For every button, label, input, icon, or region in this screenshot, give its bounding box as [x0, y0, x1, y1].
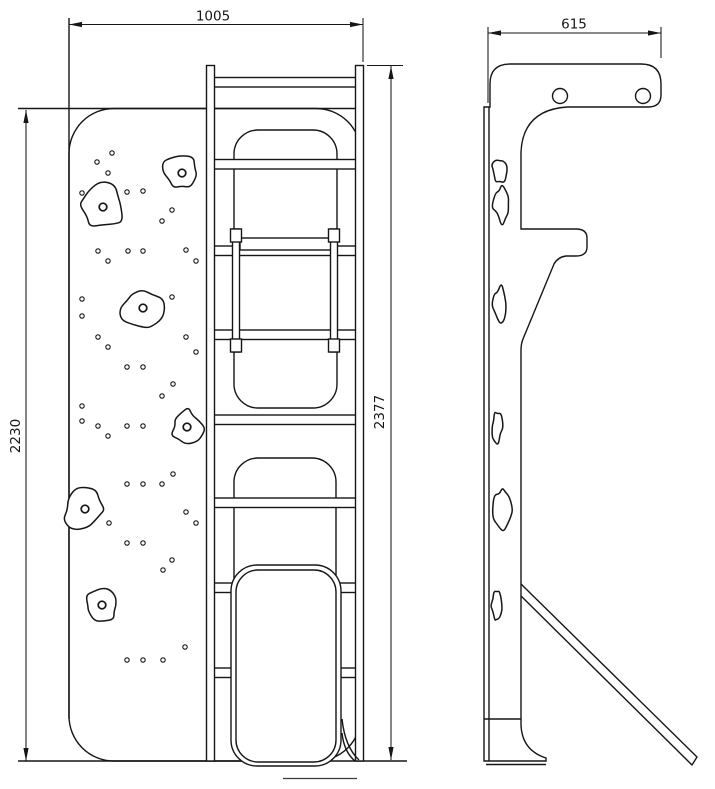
grab-post-cap-bottom	[329, 339, 340, 352]
panel-hole	[80, 191, 84, 195]
panel-hole	[184, 335, 188, 339]
panel-hole	[96, 249, 100, 253]
dimension-wall-height: 2230	[8, 110, 29, 761]
panel-hole	[106, 434, 110, 438]
panel-hole	[96, 335, 100, 339]
panel-hole	[125, 365, 129, 369]
ladder-rung	[214, 78, 356, 88]
panel-hole	[125, 482, 129, 486]
climb-hold-outline	[172, 409, 204, 444]
front-climb-holds	[64, 156, 204, 621]
panel-hole	[96, 424, 100, 428]
panel-hole	[170, 295, 174, 299]
dimension-label-depth: 615	[561, 17, 587, 33]
grab-post-cap-top	[231, 229, 242, 242]
grab-post-cap-bottom	[231, 339, 242, 352]
climb-hold	[64, 487, 103, 529]
climb-hold	[81, 182, 122, 226]
panel-hole	[141, 189, 145, 193]
panel-hole	[170, 558, 174, 562]
panel-hole	[171, 472, 175, 476]
panel-hole	[184, 510, 188, 514]
grab-post-cap-top	[329, 229, 340, 242]
panel-hole	[160, 394, 164, 398]
dimension-label-width: 1005	[196, 9, 230, 25]
slide-panel-outer	[231, 565, 341, 766]
dimension-overall-height: 2377	[367, 66, 403, 761]
ladder-rung	[214, 415, 356, 425]
dimension-label-overall-height: 2377	[372, 395, 388, 429]
grab-post-body	[233, 229, 240, 352]
climb-hold-outline	[87, 588, 116, 621]
side-view: 615	[484, 17, 697, 766]
dimension-label-wall-height: 2230	[8, 419, 24, 453]
panel-hole	[80, 314, 84, 318]
arrowhead-icon	[648, 30, 661, 35]
arrowhead-icon	[23, 748, 28, 761]
panel-hole	[107, 521, 111, 525]
grab-post-left	[231, 229, 242, 352]
panel-hole	[126, 249, 130, 253]
panel-hole	[141, 658, 145, 662]
panel-hole	[110, 151, 114, 155]
panel-hole	[80, 297, 84, 301]
panel-hole	[106, 345, 110, 349]
arrowhead-icon	[488, 30, 501, 35]
panel-hole	[141, 482, 145, 486]
beam-bolt-hole	[553, 89, 568, 104]
panel-hole	[160, 482, 164, 486]
side-profile-outline	[484, 64, 661, 761]
ladder-rail-left	[207, 66, 215, 762]
grab-post-body	[331, 229, 338, 352]
beam-bolt-hole	[636, 89, 651, 104]
ladder-rung	[214, 160, 356, 170]
panel-hole	[194, 350, 198, 354]
slide-pole	[516, 584, 697, 765]
grab-bar	[240, 238, 332, 250]
panel-hole	[125, 190, 129, 194]
panel-hole	[106, 259, 110, 263]
climb-hold-side	[492, 160, 507, 182]
panel-hole	[183, 645, 187, 649]
grab-post-right	[329, 229, 340, 352]
climb-hold-outline	[64, 487, 103, 529]
climb-hold-outline	[120, 291, 164, 328]
panel-hole	[125, 424, 129, 428]
arrowhead-icon	[388, 66, 393, 79]
panel-hole	[170, 208, 174, 212]
drawing-canvas: 1005 2230 2377	[0, 0, 715, 789]
panel-hole	[141, 424, 145, 428]
panel-hole	[106, 171, 110, 175]
arrowhead-icon	[388, 747, 393, 760]
arrowhead-icon	[350, 22, 363, 27]
climb-hold	[87, 588, 116, 621]
panel-hole	[141, 365, 145, 369]
panel-hole	[125, 658, 129, 662]
climb-hold	[120, 291, 164, 328]
dimension-front-width: 1005	[69, 9, 363, 63]
front-view: 1005 2230 2377	[8, 9, 407, 767]
panel-hole	[141, 249, 145, 253]
front-panel-holes	[80, 151, 198, 662]
panel-hole	[161, 568, 165, 572]
technical-drawing: 1005 2230 2377	[0, 0, 715, 789]
climb-hold	[163, 156, 197, 187]
panel-hole	[141, 541, 145, 545]
panel-hole	[95, 160, 99, 164]
panel-hole	[184, 248, 188, 252]
ladder-rail-right	[356, 66, 364, 762]
climb-hold	[172, 409, 204, 444]
arrowhead-icon	[69, 22, 82, 27]
panel-hole	[80, 404, 84, 408]
panel-hole	[171, 382, 175, 386]
panel-hole	[194, 259, 198, 263]
panel-hole	[125, 541, 129, 545]
panel-hole	[80, 419, 84, 423]
ladder-rung	[214, 498, 356, 508]
upper-window-cutout	[234, 130, 337, 408]
panel-hole	[160, 219, 164, 223]
panel-hole	[161, 658, 165, 662]
panel-hole	[194, 521, 198, 525]
arrowhead-icon	[23, 110, 28, 123]
